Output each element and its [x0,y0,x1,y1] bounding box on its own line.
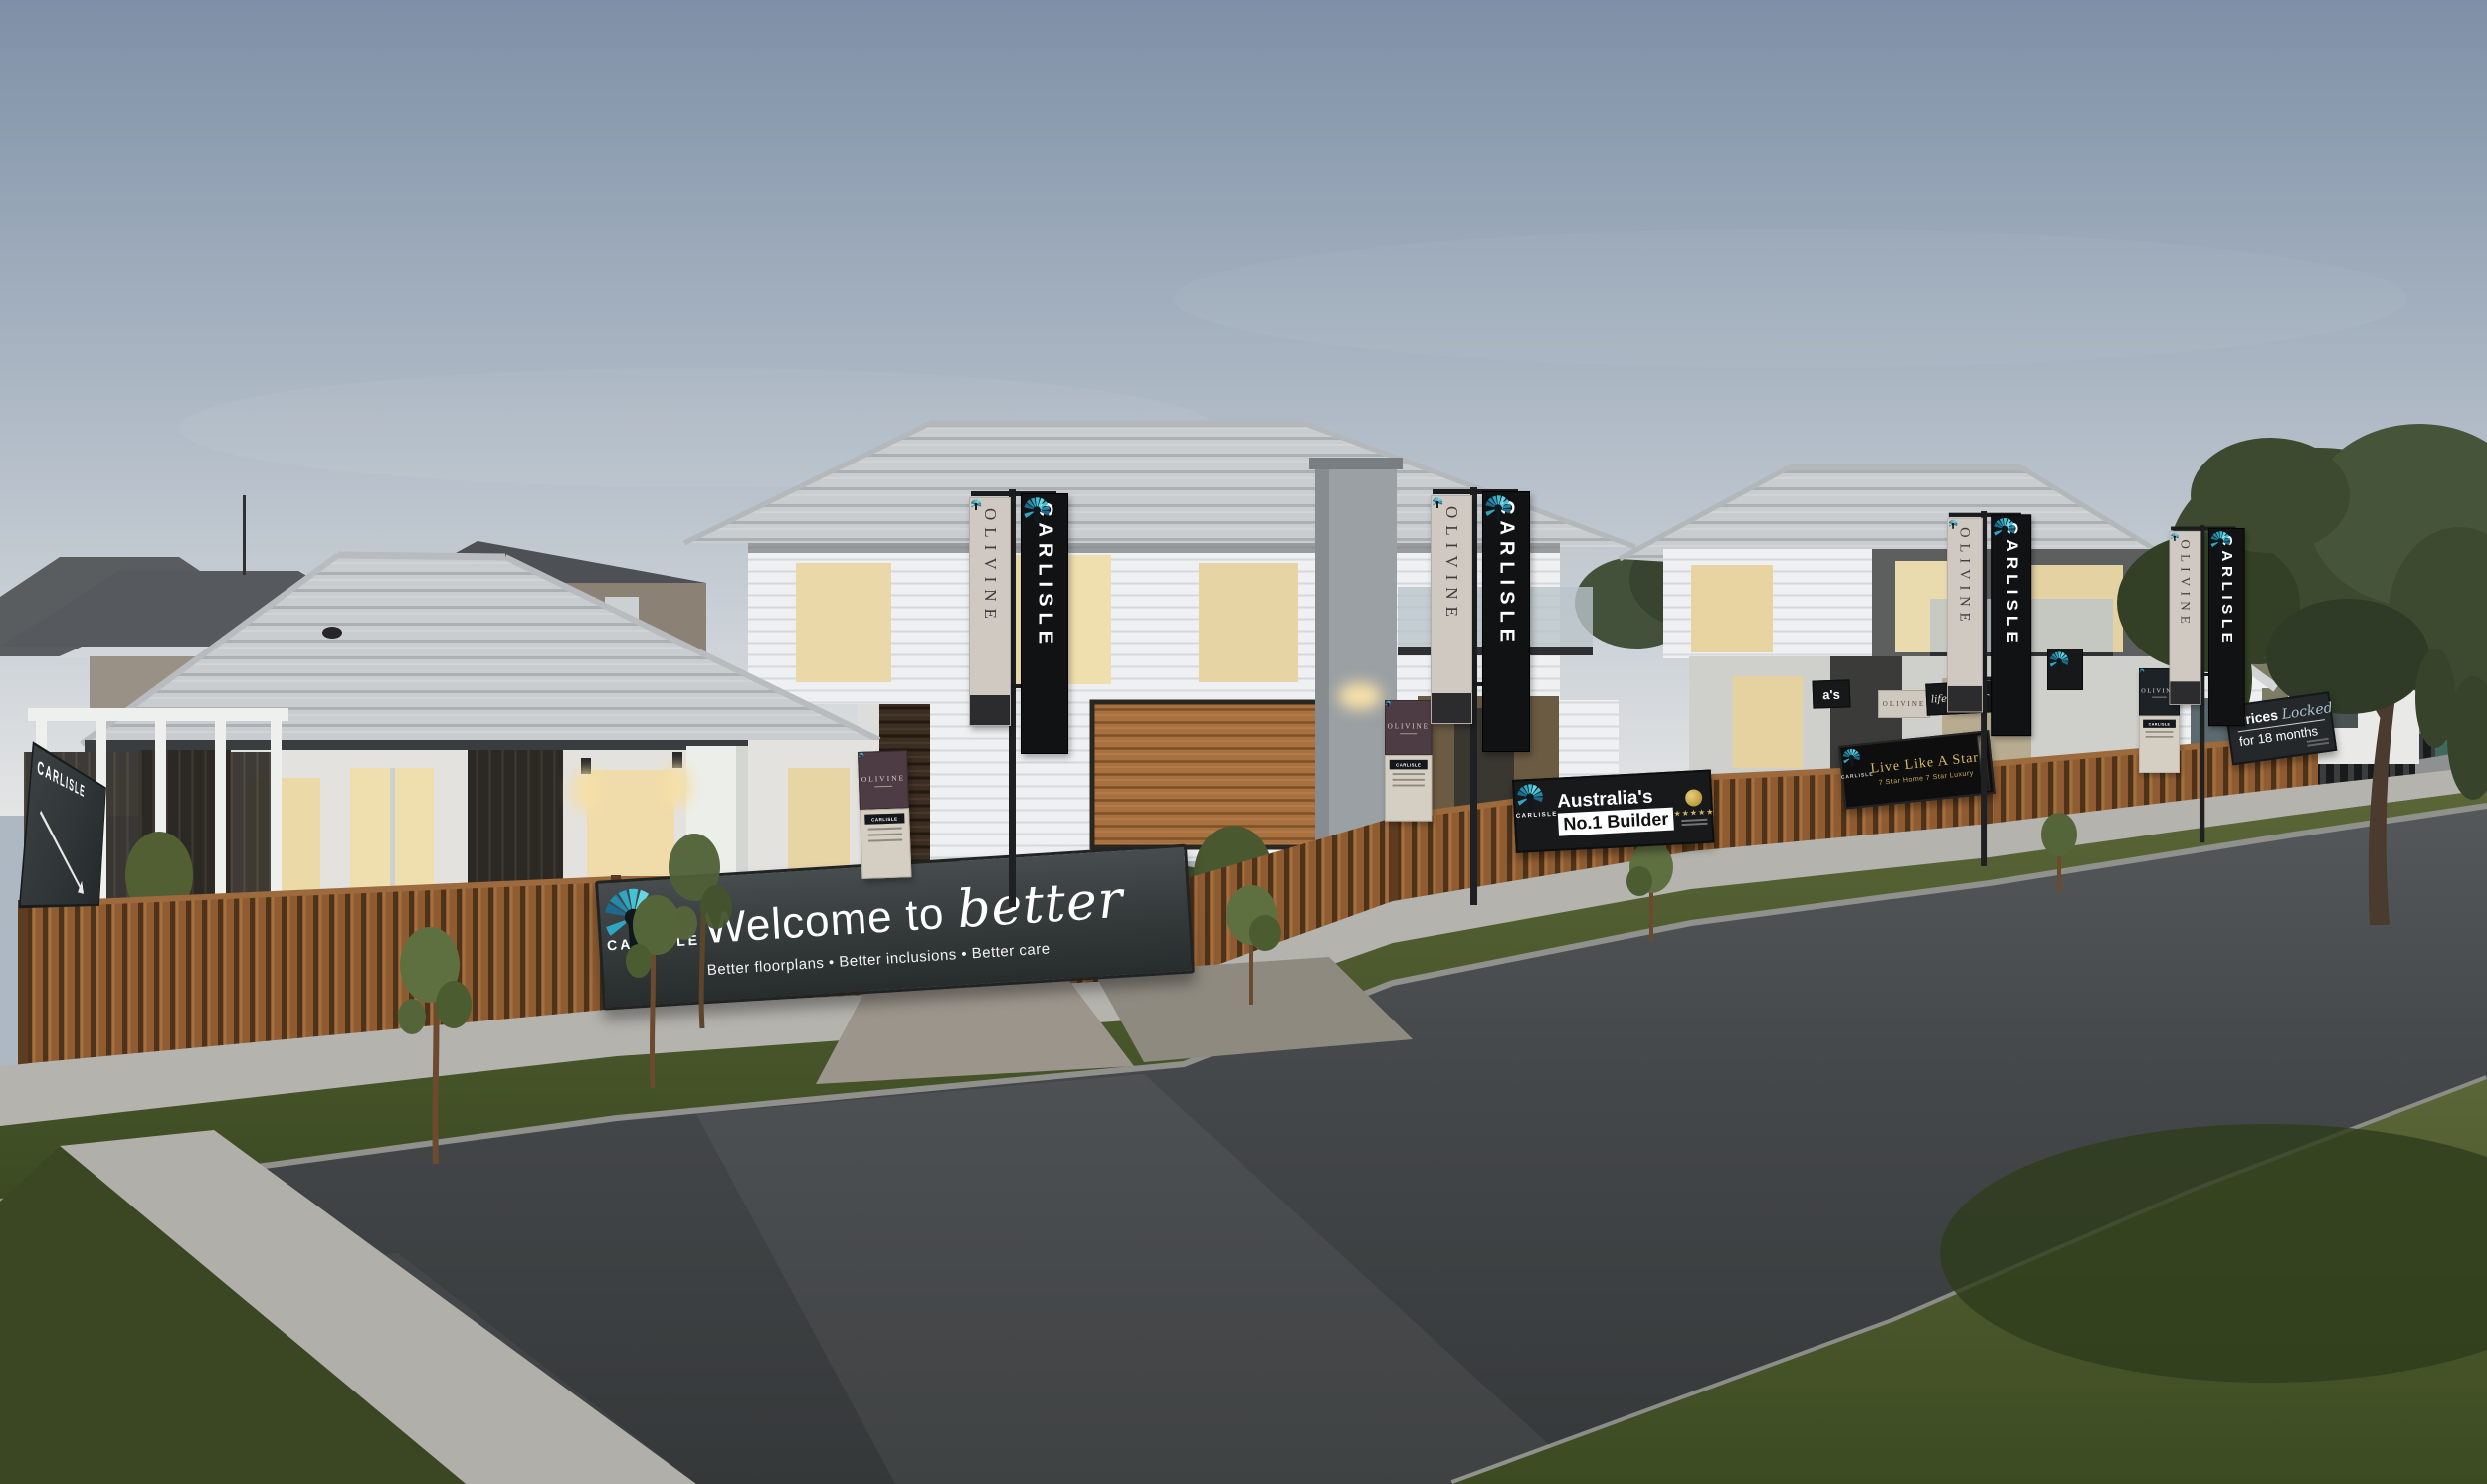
fine-print-lines [2306,736,2329,747]
fine-print-line [1682,823,1708,826]
olivine-pedestal-sign: OLIVINE CARLISLE [1385,700,1433,822]
olivine-pedestal-sign: OLIVINE CARLISLE [858,750,911,879]
carlisle-logo-icon [970,498,982,510]
carlisle-logo-icon [858,752,864,759]
brand-wordmark: CARLISLE [1516,812,1558,820]
pedestal-brand-text: CARLISLE [871,816,898,822]
no1-builder-sign: CARLISLE Australia's No.1 Builder ★★★★★ [1512,770,1715,853]
carlisle-logo-icon [1514,780,1546,812]
carlisle-logo-icon [2209,529,2232,552]
pedestal-brand-text: CARLISLE [2149,722,2171,726]
olivine-flag: OLIVINE [1947,518,1983,713]
olivine-flag: OLIVINE [1431,495,1472,724]
carlisle-logo-icon [1992,515,2017,541]
carlisle-flag-text: CARLISLE [1034,502,1056,649]
arrow-icon [40,811,84,894]
carlisle-logo-icon [1948,519,1958,529]
prices-locked-script: Locked [2281,700,2334,723]
carlisle-flag-text: CARLISLE [2002,522,2021,648]
olivine-flag: OLIVINE [969,497,1011,726]
pedestal-brand-text: CARLISLE [1396,762,1421,767]
carlisle-logo-icon [598,880,668,950]
carlisle-flag: CARLISLE [1021,493,1068,754]
carlisle-logo-icon [2170,532,2179,541]
olivine-flag-text: OLIVINE [980,508,1000,626]
carlisle-flag-text: CARLISLE [1495,500,1518,648]
carlisle-logo-icon [1432,496,1443,508]
scene-illustration [0,0,2487,1484]
carlisle-flag-text: CARLISLE [2218,535,2235,647]
pedestal-estate-text: OLIVINE [1388,721,1430,730]
olivine-flag: OLIVINE [2170,531,2201,705]
no1-line2: No.1 Builder [1558,808,1674,836]
five-stars: ★★★★★ [1673,807,1714,818]
olivine-flag-text: OLIVINE [1956,527,1973,627]
logo-panel [2047,649,2083,690]
welcome-title-script: better [955,869,1125,939]
carlisle-logo-icon [1385,700,1392,707]
fine-print-line [1681,819,1707,822]
olivine-flag-text: OLIVINE [2178,539,2193,629]
carlisle-logo-icon [1022,494,1052,524]
carlisle-logo-icon [2048,649,2070,671]
carlisle-logo-icon [2139,668,2145,674]
brand-wordmark: CARLISLE [1841,771,1874,780]
carlisle-flag: CARLISLE [1991,514,2031,736]
photo-display-village: CARLISLE Welcome to better Better floorp… [0,0,2487,1484]
gold-badge-icon [1684,789,1702,807]
carlisle-logo-icon [1483,492,1513,522]
carlisle-logo-icon [1840,746,1862,768]
partial-australias-sign: a's [1813,679,1851,708]
carlisle-flag: CARLISLE [1482,491,1530,752]
pedestal-estate-text: OLIVINE [861,773,906,784]
carlisle-flag: CARLISLE [2208,528,2244,726]
olivine-flag-text: OLIVINE [1441,506,1461,624]
olivine-wall-sign: OLIVINE [1878,690,1930,718]
